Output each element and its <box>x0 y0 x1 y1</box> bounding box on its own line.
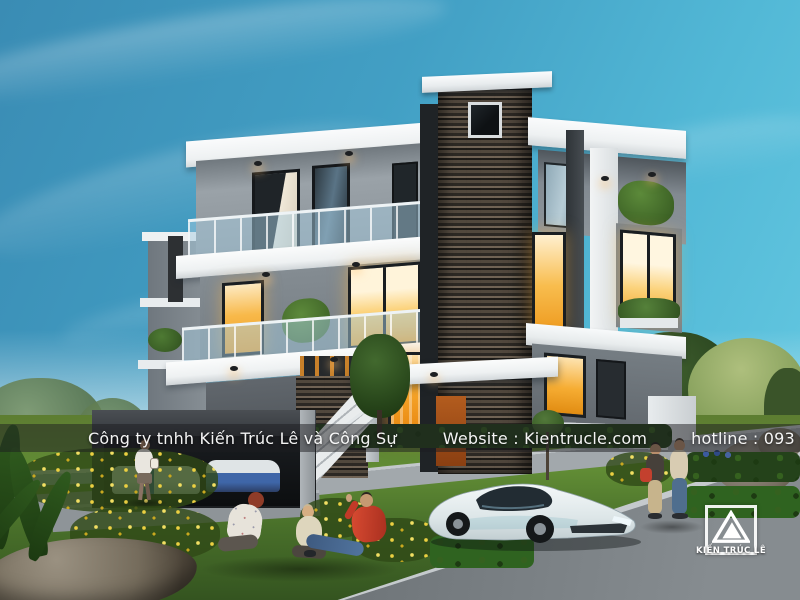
balcony-plant <box>148 328 182 352</box>
person-legs <box>217 534 258 552</box>
downlight <box>648 172 656 177</box>
downlight <box>601 176 609 181</box>
person-shoe <box>672 513 688 519</box>
person-torso <box>670 450 688 480</box>
watermark-company-text: Công ty tnhh Kiến Trúc Lê và Công Sự <box>88 429 397 448</box>
watermark-hotline-text: hotline : 093 999 1981 <box>691 429 800 448</box>
logo-badge: KIẾN TRÚC LÊ <box>698 502 764 566</box>
downlight <box>262 272 270 277</box>
downlight <box>345 151 353 156</box>
white-supercar <box>418 460 650 555</box>
roof-terrace-plant <box>618 179 674 228</box>
watermark-bar: Công ty tnhh Kiến Trúc Lê và Công Sự Web… <box>0 424 800 452</box>
person-shoe <box>304 550 316 557</box>
downlight <box>430 372 438 377</box>
downlight <box>330 357 338 362</box>
person-legs <box>672 478 687 514</box>
tower-window <box>468 102 502 138</box>
person-legs <box>648 480 662 514</box>
downlight <box>254 161 262 166</box>
handbag <box>150 458 159 469</box>
walking-couple <box>640 440 700 536</box>
downlight <box>352 262 360 267</box>
downlight <box>230 366 238 371</box>
architectural-render-scene: Công ty tnhh Kiến Trúc Lê và Công Sự Web… <box>0 0 800 600</box>
person-torso <box>350 504 388 543</box>
seated-woman <box>214 492 274 572</box>
person-leg <box>145 483 151 500</box>
person-hand <box>346 494 352 502</box>
logo-label: KIẾN TRÚC LÊ <box>692 546 770 556</box>
person-head <box>360 494 373 507</box>
dark-window <box>596 359 626 420</box>
tower-cap-slab <box>422 71 552 93</box>
triangle-logo-icon <box>712 510 750 544</box>
seated-man-red-shirt <box>304 490 400 574</box>
courtyard-tree <box>350 334 410 418</box>
watermark-website-text: Website : Kientrucle.com <box>443 429 647 448</box>
person-leg <box>138 483 144 500</box>
lit-window <box>532 232 566 330</box>
planter-box <box>620 318 678 328</box>
person-shoe <box>648 513 662 519</box>
